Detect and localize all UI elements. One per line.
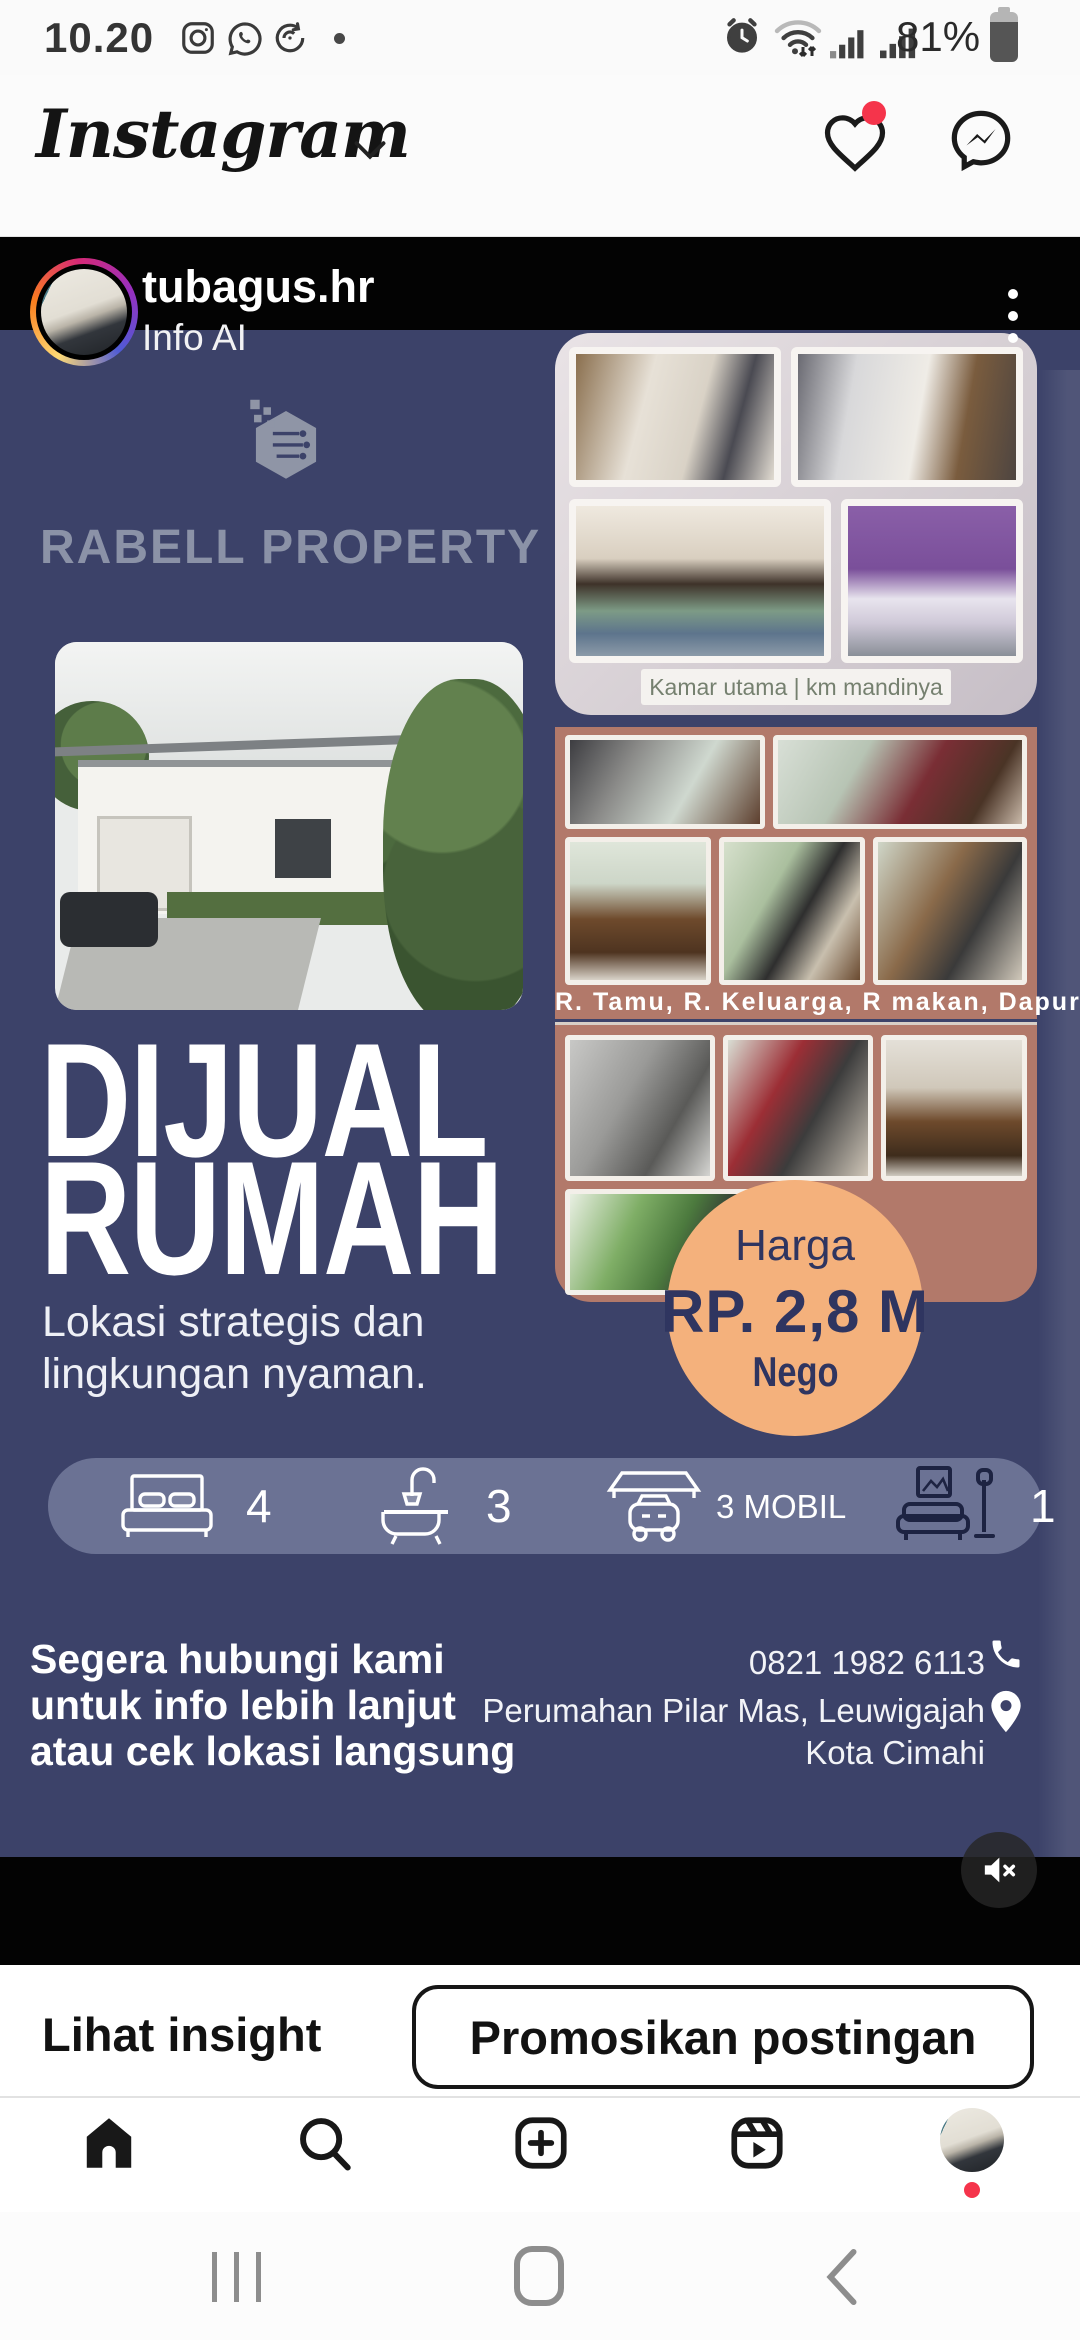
- three-dot-menu-icon[interactable]: [1008, 289, 1020, 355]
- search-icon[interactable]: [294, 2112, 356, 2174]
- notification-badge: [862, 101, 886, 125]
- phone-screen: 10.20: [0, 0, 1080, 2340]
- collage-caption: R. Tamu, R. Keluarga, R makan, Dapur: [555, 988, 1037, 1017]
- battery-icon: [990, 12, 1018, 62]
- address-line2: Kota Cimahi: [425, 1732, 985, 1774]
- address-line1: Perumahan Pilar Mas, Leuwigajah: [425, 1690, 985, 1732]
- phone-icon: [988, 1636, 1024, 1672]
- post-actions-row: Lihat insight Promosikan postingan: [0, 1965, 1080, 2096]
- status-bar: 10.20: [0, 0, 1080, 75]
- app-header: Instagram: [0, 75, 1080, 237]
- photo-living-extra: [873, 837, 1027, 985]
- status-time: 10.20: [44, 14, 154, 62]
- sync-icon: [272, 20, 308, 56]
- battery-percent: 81%: [896, 13, 980, 61]
- photo-dining-2: [881, 1035, 1027, 1181]
- phone-number: 0821 1982 6113: [425, 1642, 985, 1684]
- bed-icon: [118, 1472, 218, 1542]
- house-car: [60, 892, 158, 947]
- home-icon[interactable]: [78, 2112, 140, 2174]
- android-navigation-bar: [0, 2212, 1080, 2340]
- bottom-navigation: [0, 2098, 1080, 2212]
- notification-dot: [334, 33, 345, 44]
- profile-avatar[interactable]: [940, 2108, 1004, 2172]
- bathtub-icon: [378, 1466, 454, 1548]
- post-media[interactable]: RABELL PROPERTY Kamar utama | km mandiny…: [0, 237, 1080, 1965]
- reels-icon[interactable]: [726, 2112, 788, 2174]
- amenity-bar: 4 3: [48, 1458, 1042, 1554]
- chevron-down-icon[interactable]: [352, 137, 388, 163]
- view-insights-link[interactable]: Lihat insight: [42, 2007, 321, 2062]
- location-pin-icon: [984, 1688, 1028, 1736]
- photo-bathroom: [841, 499, 1023, 663]
- brand-logo-icon: [235, 396, 337, 490]
- post-username[interactable]: tubagus.hr: [142, 261, 375, 313]
- house-window: [275, 819, 331, 878]
- messenger-icon[interactable]: [948, 107, 1014, 173]
- speaker-muted-icon[interactable]: [961, 1832, 1037, 1908]
- photo-house-exterior: [55, 642, 523, 1010]
- sofa-icon: [896, 1464, 1008, 1550]
- collage-living-rooms: R. Tamu, R. Keluarga, R makan, Dapur: [555, 727, 1037, 1019]
- wifi-icon: [772, 14, 824, 62]
- instagram-icon: [180, 20, 216, 56]
- price-note: Nego: [752, 1348, 838, 1396]
- collage-bedrooms: Kamar utama | km mandinya: [555, 333, 1037, 715]
- headline-rumah: RUMAH: [40, 1160, 502, 1278]
- collage-caption: Kamar utama | km mandinya: [641, 669, 951, 705]
- promote-post-button[interactable]: Promosikan postingan: [412, 1985, 1034, 2089]
- post-info-label[interactable]: Info AI: [142, 317, 247, 359]
- photo-family-room: [773, 735, 1027, 829]
- photo-sofa-dark: [565, 735, 765, 829]
- house-tree-right: [383, 679, 523, 1010]
- avatar[interactable]: [41, 269, 127, 355]
- whatsapp-icon: [226, 20, 264, 58]
- home-pill-icon[interactable]: [514, 2246, 564, 2306]
- create-post-icon[interactable]: [510, 2112, 572, 2174]
- carport-count: 3 MOBIL: [716, 1488, 846, 1526]
- photo-garage: [565, 1035, 715, 1181]
- photo-red-chairs: [723, 1035, 873, 1181]
- bathroom-count: 3: [486, 1479, 512, 1533]
- carport-icon: [604, 1468, 704, 1546]
- photo-dining: [565, 837, 711, 985]
- price-label: Harga: [735, 1221, 855, 1271]
- livingroom-count: 1: [1030, 1479, 1056, 1533]
- avatar-story-ring[interactable]: [30, 258, 138, 366]
- brand-name: RABELL PROPERTY: [40, 520, 540, 575]
- photo-bedroom-mirror: [569, 347, 781, 487]
- tagline: Lokasi strategis dan lingkungan nyaman.: [42, 1296, 472, 1401]
- back-icon[interactable]: [822, 2248, 862, 2306]
- photo-tv-room: [719, 837, 865, 985]
- flyer-image: RABELL PROPERTY Kamar utama | km mandiny…: [0, 330, 1080, 1857]
- price-value: RP. 2,8 M: [661, 1277, 929, 1346]
- alarm-icon: [722, 16, 762, 56]
- contact-info: 0821 1982 6113 Perumahan Pilar Mas, Leuw…: [425, 1642, 985, 1774]
- price-badge: Harga RP. 2,8 M Nego: [667, 1180, 923, 1436]
- bedroom-count: 4: [246, 1479, 272, 1533]
- photo-main-bed: [569, 499, 831, 663]
- promote-post-label: Promosikan postingan: [470, 2010, 977, 2065]
- signal-icon: [830, 22, 870, 62]
- profile-notification-dot: [964, 2182, 980, 2198]
- recents-icon[interactable]: [212, 2252, 261, 2302]
- photo-vanity-room: [791, 347, 1023, 487]
